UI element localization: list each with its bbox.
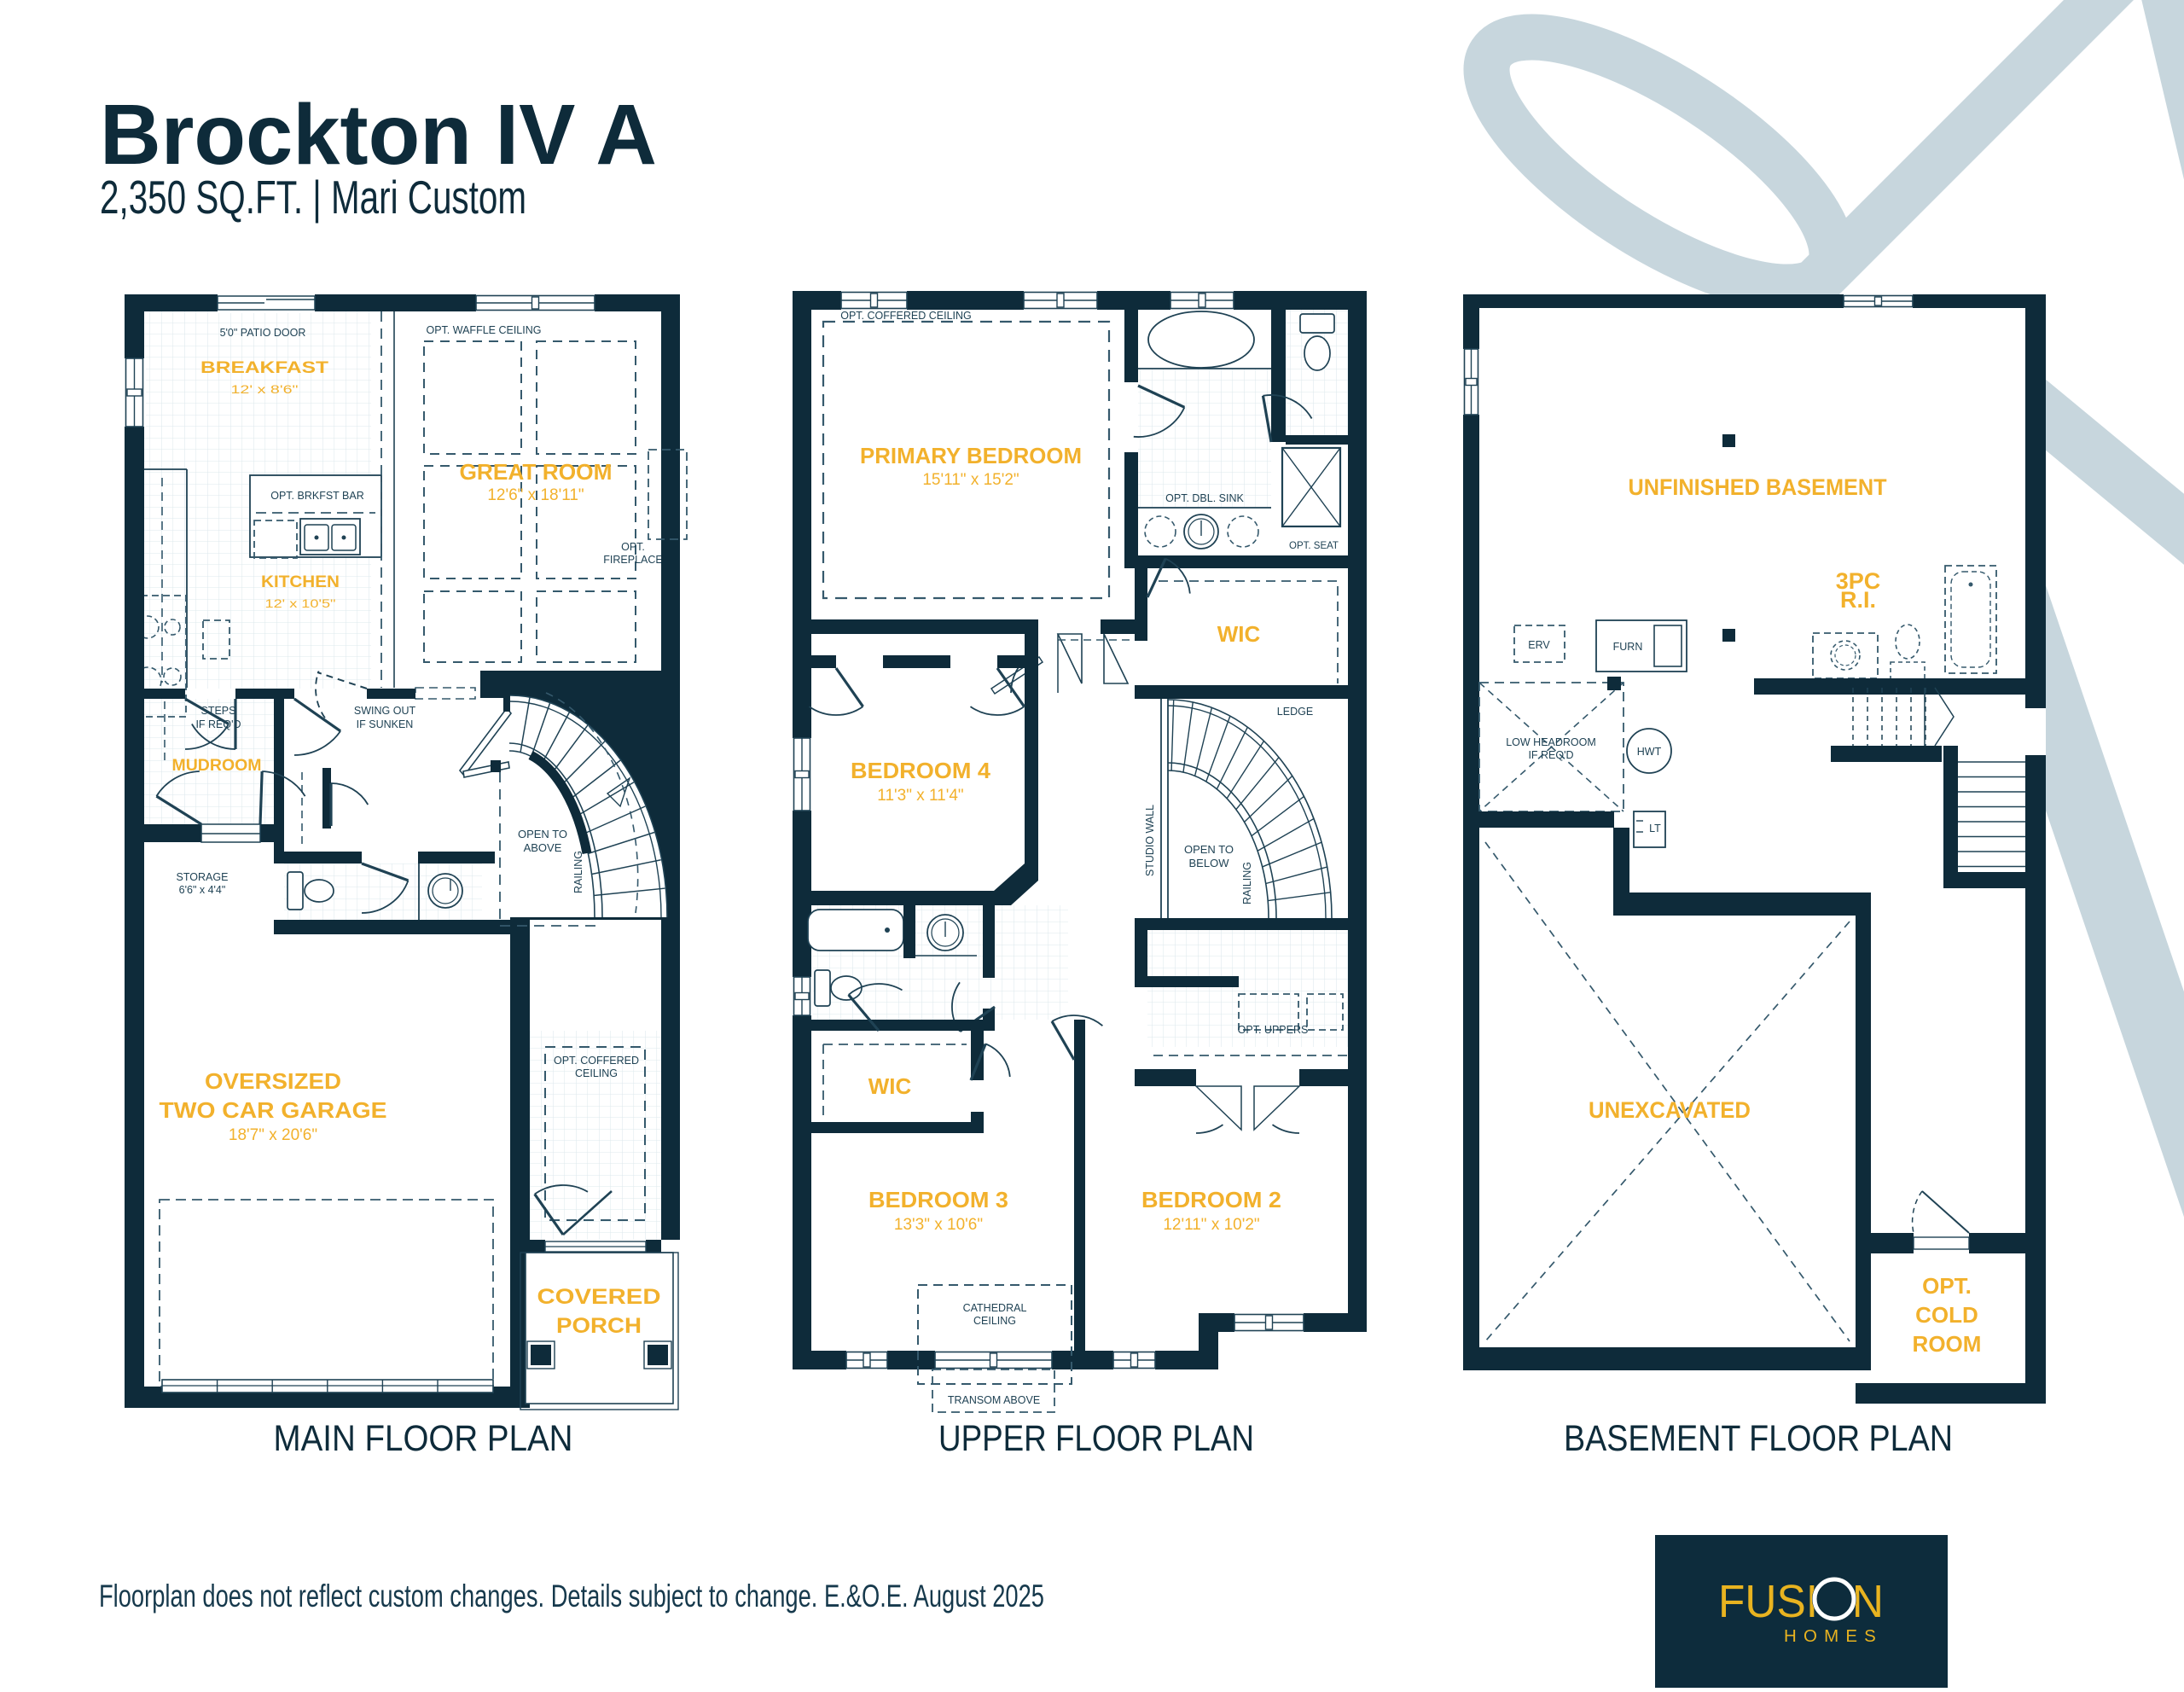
svg-text:PORCH: PORCH [556,1314,642,1338]
svg-text:LOW HEADROOM: LOW HEADROOM [1506,736,1596,748]
svg-text:BEDROOM 4: BEDROOM 4 [851,758,991,783]
svg-text:ROOM: ROOM [1913,1331,1982,1357]
svg-text:12' x 10'5": 12' x 10'5" [265,596,336,610]
svg-text:RAILING: RAILING [1241,862,1253,904]
svg-text:BREAKFAST: BREAKFAST [200,359,328,377]
svg-text:STUDIO WALL: STUDIO WALL [1144,805,1156,876]
svg-text:OPT. BRKFST BAR: OPT. BRKFST BAR [270,490,364,502]
svg-text:12'11" x 10'2": 12'11" x 10'2" [1163,1216,1259,1234]
svg-text:LT: LT [1649,823,1661,834]
svg-text:13'3" x 10'6": 13'3" x 10'6" [894,1216,983,1234]
svg-text:UPPER FLOOR PLAN: UPPER FLOOR PLAN [938,1418,1254,1459]
svg-text:LEDGE: LEDGE [1277,706,1313,718]
svg-text:FURN: FURN [1613,641,1643,653]
svg-text:COLD: COLD [1915,1302,1978,1328]
svg-text:OPT.: OPT. [621,541,645,553]
svg-text:MAIN FLOOR PLAN: MAIN FLOOR PLAN [274,1418,573,1459]
svg-text:UNFINISHED BASEMENT: UNFINISHED BASEMENT [1629,474,1887,500]
svg-text:RAILING: RAILING [572,851,584,893]
svg-text:OPEN TO: OPEN TO [1184,843,1234,856]
svg-text:PRIMARY BEDROOM: PRIMARY BEDROOM [860,443,1082,468]
svg-text:OPT. WAFFLE CEILING: OPT. WAFFLE CEILING [427,324,542,336]
svg-text:TRANSOM ABOVE: TRANSOM ABOVE [948,1394,1040,1406]
svg-text:HOMES: HOMES [1784,1627,1883,1646]
svg-text:FUSION: FUSION [1718,1576,1884,1627]
svg-text:OPT. COFFERED: OPT. COFFERED [554,1055,639,1067]
svg-text:CEILING: CEILING [575,1067,618,1079]
svg-text:KITCHEN: KITCHEN [261,573,340,591]
svg-text:CEILING: CEILING [973,1315,1016,1327]
svg-text:STORAGE: STORAGE [177,871,229,883]
svg-text:TWO CAR GARAGE: TWO CAR GARAGE [160,1097,387,1123]
svg-text:18'7" x 20'6": 18'7" x 20'6" [229,1126,317,1144]
svg-text:OPT. UPPERS: OPT. UPPERS [1238,1024,1309,1036]
svg-text:15'11" x 15'2": 15'11" x 15'2" [922,471,1019,489]
svg-text:OPEN TO: OPEN TO [518,828,567,840]
svg-text:FIREPLACE: FIREPLACE [603,554,662,566]
svg-text:BELOW: BELOW [1189,857,1230,869]
svg-text:CATHEDRAL: CATHEDRAL [963,1302,1027,1314]
svg-text:OVERSIZED: OVERSIZED [205,1068,341,1094]
svg-text:OPT. SEAT: OPT. SEAT [1289,541,1339,551]
svg-text:12'6" x 18'11": 12'6" x 18'11" [487,486,584,504]
svg-text:OPT. DBL. SINK: OPT. DBL. SINK [1165,492,1244,504]
svg-text:OPT.: OPT. [1922,1273,1972,1299]
svg-text:IF SUNKEN: IF SUNKEN [357,718,414,730]
svg-text:IF REQ'D: IF REQ'D [1528,749,1573,761]
svg-text:WIC: WIC [1217,621,1261,647]
svg-text:BEDROOM 3: BEDROOM 3 [868,1187,1008,1212]
svg-text:2,350 SQ.FT. | Mari Custom: 2,350 SQ.FT. | Mari Custom [100,171,526,224]
svg-text:6'6" x 4'4": 6'6" x 4'4" [179,884,226,896]
svg-text:COVERED: COVERED [537,1285,661,1309]
svg-text:Floorplan does not reflect cus: Floorplan does not reflect custom change… [99,1579,1044,1614]
svg-text:11'3" x 11'4": 11'3" x 11'4" [877,787,963,805]
svg-text:ABOVE: ABOVE [524,841,562,854]
svg-text:GREAT ROOM: GREAT ROOM [460,459,613,485]
svg-text:WIC: WIC [868,1073,912,1099]
svg-text:Brockton IV A: Brockton IV A [100,87,657,183]
svg-text:R.I.: R.I. [1840,587,1876,613]
svg-text:SWING OUT: SWING OUT [354,705,416,717]
svg-text:HWT: HWT [1637,746,1662,758]
svg-text:MUDROOM: MUDROOM [172,757,262,775]
svg-text:ERV: ERV [1528,639,1550,651]
svg-text:UNEXCAVATED: UNEXCAVATED [1589,1097,1751,1123]
svg-text:BASEMENT FLOOR PLAN: BASEMENT FLOOR PLAN [1564,1418,1953,1459]
svg-text:12' x 8'6": 12' x 8'6" [231,382,299,396]
svg-text:BEDROOM 2: BEDROOM 2 [1141,1187,1281,1212]
svg-text:5'0" PATIO DOOR: 5'0" PATIO DOOR [220,327,306,339]
svg-text:OPT. COFFERED CEILING: OPT. COFFERED CEILING [840,310,972,322]
